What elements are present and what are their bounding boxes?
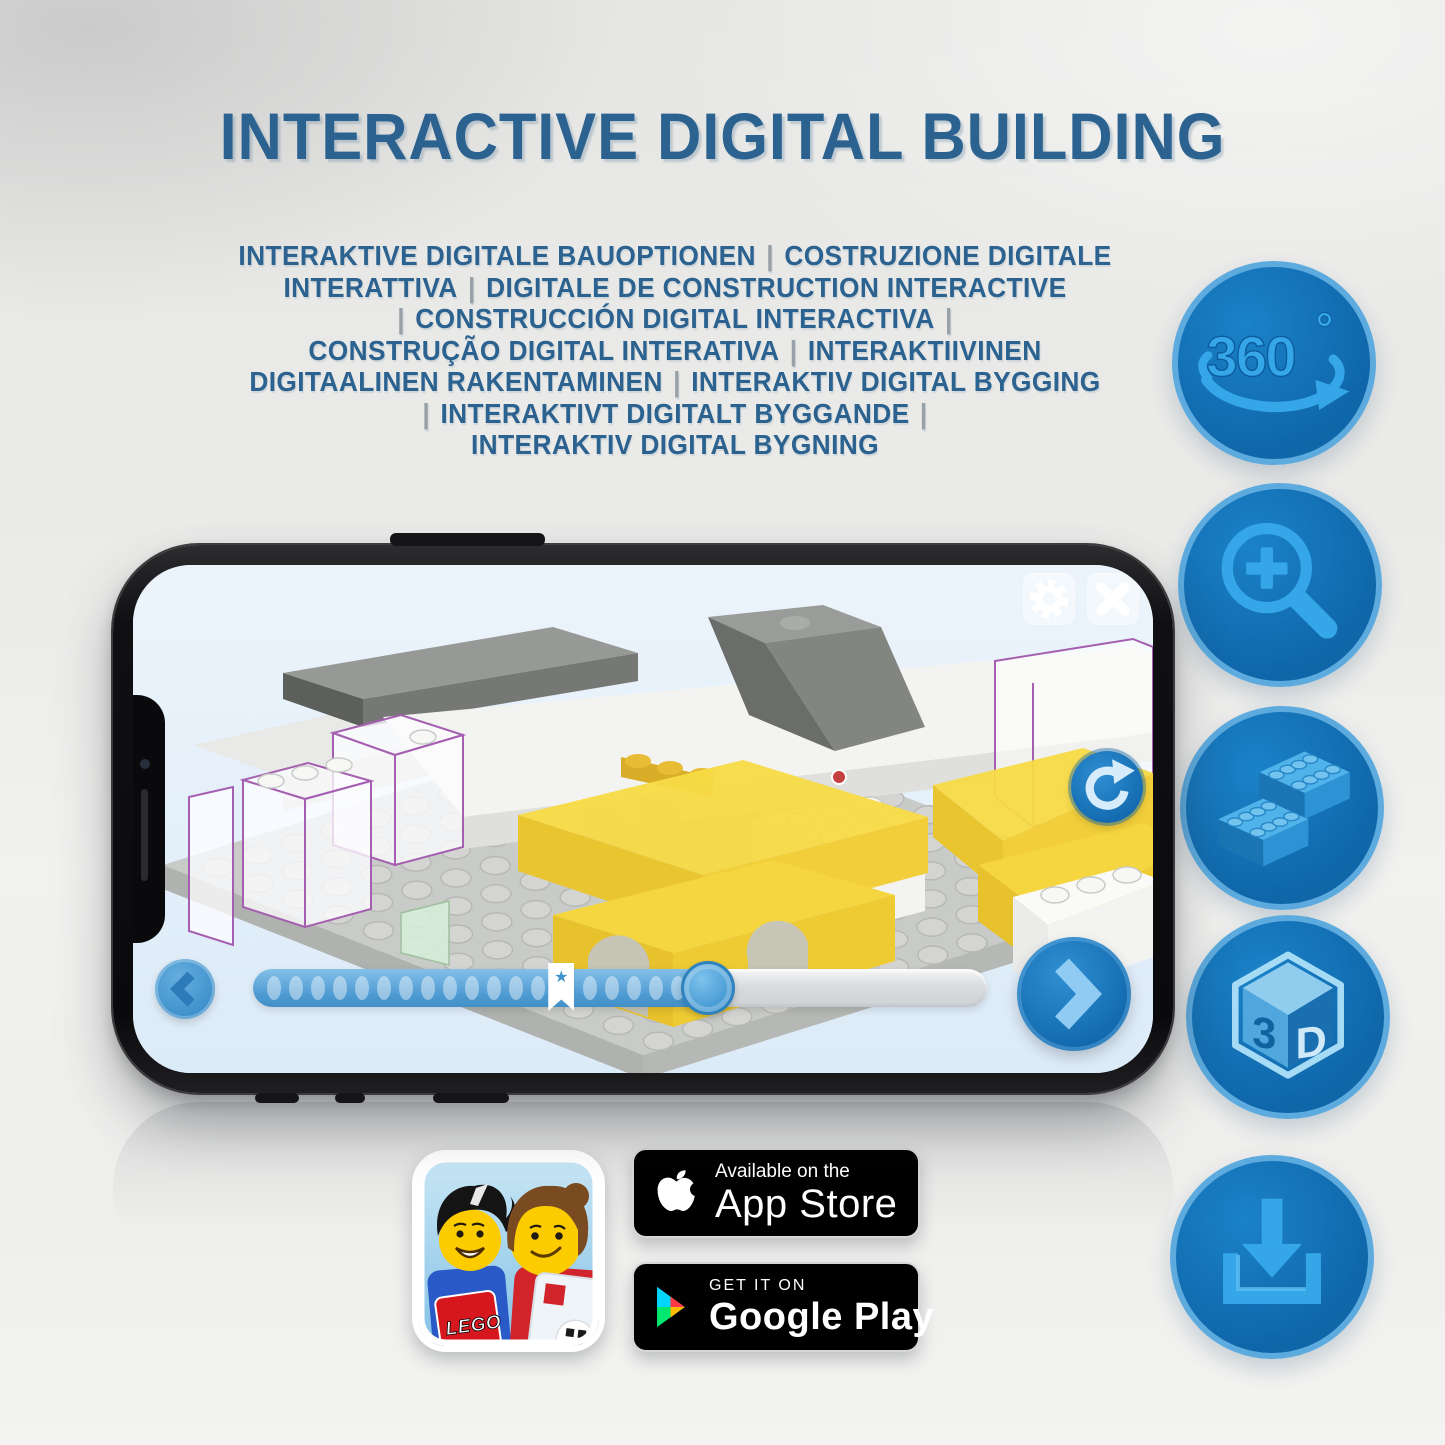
app-store-badge-title: App Store: [715, 1183, 897, 1225]
subtitle-text: INTERAKTIIVINEN: [808, 335, 1042, 366]
separator: |: [468, 272, 476, 303]
next-step-button[interactable]: [1017, 937, 1131, 1051]
rotate-icon: [1071, 751, 1143, 823]
star-icon: ★: [554, 970, 568, 986]
progress-fill: [253, 969, 708, 1007]
baseplate-stud: [481, 885, 511, 903]
google-play-badge-title: Google Play: [709, 1296, 934, 1338]
speaker-slot: [141, 789, 148, 881]
separator: |: [673, 366, 681, 397]
google-play-badge[interactable]: GET IT ON Google Play: [632, 1262, 920, 1352]
separator: |: [397, 303, 405, 334]
separator: |: [945, 303, 953, 334]
subtitle-text: CONSTRUÇÃO DIGITAL INTERATIVA: [308, 335, 779, 366]
feature-download-badge: [1170, 1155, 1374, 1359]
baseplate-stud: [480, 857, 510, 875]
progress-dot: [443, 976, 457, 1000]
step-progress-bar[interactable]: ★: [253, 969, 987, 1007]
progress-dot: [289, 976, 303, 1000]
subtitle-text: INTERAKTIV DIGITAL BYGGING: [691, 366, 1100, 397]
baseplate-stud: [441, 869, 471, 887]
phone-power-button: [390, 533, 545, 546]
rotate-view-button[interactable]: [1071, 751, 1143, 823]
svg-text:D: D: [1296, 1017, 1327, 1069]
svg-text:360: 360: [1206, 325, 1295, 388]
phone-notch: [133, 695, 165, 943]
baseplate-stud: [363, 922, 393, 940]
poster: INTERACTIVE DIGITAL BUILDING INTERAKTIVE…: [0, 0, 1445, 1445]
lego-logo: LEGO: [434, 1290, 504, 1346]
subtitle-text: INTERAKTIVE DIGITALE BAUOPTIONEN: [238, 240, 755, 271]
subtitle-text: INTERAKTIVT DIGITALT BYGGANDE: [440, 398, 909, 429]
subtitle-text: DIGITALE DE CONSTRUCTION INTERACTIVE: [486, 272, 1066, 303]
close-button[interactable]: [1087, 573, 1139, 625]
progress-handle[interactable]: [681, 961, 735, 1015]
subtitle-text: INTERATTIVA: [283, 272, 457, 303]
previous-step-button[interactable]: [155, 959, 215, 1019]
zoom-in-icon: [1184, 489, 1376, 681]
apple-icon: [652, 1165, 700, 1221]
phone-mockup: ★: [113, 545, 1173, 1093]
progress-dot: [509, 976, 523, 1000]
app-store-badge[interactable]: Available on the App Store: [632, 1148, 920, 1238]
baseplate-stud: [918, 946, 948, 964]
app-store-badge-caption: Available on the: [715, 1161, 897, 1183]
page-title: INTERACTIVE DIGITAL BUILDING: [51, 98, 1395, 174]
phone-volume-up-button: [255, 1093, 299, 1103]
baseplate-stud: [522, 929, 552, 947]
baseplate-stud: [603, 1016, 633, 1034]
progress-dot: [487, 976, 501, 1000]
subtitle-line: |CONSTRUCCIÓN DIGITAL INTERACTIVA|: [172, 303, 1178, 335]
close-icon: [1087, 573, 1139, 625]
subtitle-line: CONSTRUÇÃO DIGITAL INTERATIVA|INTERAKTII…: [172, 335, 1178, 367]
progress-dot: [399, 976, 413, 1000]
progress-dot: [355, 976, 369, 1000]
svg-text:3: 3: [1252, 1008, 1276, 1059]
lego-bricks-icon: [1186, 712, 1378, 904]
chevron-left-icon: [155, 959, 215, 1019]
progress-dot: [465, 976, 479, 1000]
subtitle: INTERAKTIVE DIGITALE BAUOPTIONEN|COSTRUZ…: [172, 240, 1178, 461]
svg-text:°: °: [1315, 303, 1333, 354]
lego-app-icon[interactable]: LEGO: [412, 1150, 605, 1352]
subtitle-line: INTERAKTIV DIGITAL BYGNING: [172, 429, 1178, 461]
progress-dot: [627, 976, 641, 1000]
feature-bricks-badge: [1180, 706, 1384, 910]
baseplate-stud: [521, 901, 551, 919]
phone-volume-down-button: [335, 1093, 365, 1103]
lego-app-icon-art: LEGO: [418, 1156, 599, 1346]
progress-dot: [649, 976, 663, 1000]
chevron-right-icon: [1017, 937, 1131, 1051]
settings-button[interactable]: [1023, 573, 1075, 625]
separator: |: [790, 335, 798, 366]
progress-dot: [267, 976, 281, 1000]
separator: |: [422, 398, 430, 429]
baseplate-stud: [917, 918, 947, 936]
feature-3d-badge: 3 D: [1186, 915, 1390, 1119]
feature-360-badge: 360 °: [1172, 261, 1376, 465]
subtitle-line: INTERAKTIVE DIGITALE BAUOPTIONEN|COSTRUZ…: [172, 240, 1178, 272]
front-camera: [140, 759, 150, 769]
separator: |: [920, 398, 928, 429]
360-rotation-icon: 360 °: [1178, 267, 1370, 459]
gear-icon: [1023, 573, 1075, 625]
app-screen: ★: [133, 565, 1153, 1073]
baseplate-stud: [957, 934, 987, 952]
progress-dot: [333, 976, 347, 1000]
google-play-icon: [652, 1283, 694, 1331]
baseplate-stud: [643, 1032, 673, 1050]
baseplate-stud: [402, 881, 432, 899]
progress-dot: [583, 976, 597, 1000]
google-play-badge-caption: GET IT ON: [709, 1276, 934, 1296]
subtitle-line: INTERATTIVA|DIGITALE DE CONSTRUCTION INT…: [172, 272, 1178, 304]
progress-dot: [311, 976, 325, 1000]
subtitle-text: INTERAKTIV DIGITAL BYGNING: [471, 429, 879, 460]
separator: |: [766, 240, 774, 271]
baseplate-stud: [482, 913, 512, 931]
subtitle-line: DIGITAALINEN RAKENTAMINEN|INTERAKTIV DIG…: [172, 366, 1178, 398]
download-icon: [1176, 1161, 1368, 1353]
phone-side-button: [433, 1093, 509, 1103]
feature-zoom-badge: [1178, 483, 1382, 687]
progress-dot: [531, 976, 545, 1000]
baseplate-stud: [483, 941, 513, 959]
progress-dot: [605, 976, 619, 1000]
subtitle-text: CONSTRUCCIÓN DIGITAL INTERACTIVA: [415, 303, 934, 334]
progress-dot: [421, 976, 435, 1000]
subtitle-line: |INTERAKTIVT DIGITALT BYGGANDE|: [172, 398, 1178, 430]
3d-cube-icon: 3 D: [1192, 921, 1384, 1113]
subtitle-text: DIGITAALINEN RAKENTAMINEN: [249, 366, 662, 397]
subtitle-text: COSTRUZIONE DIGITALE: [784, 240, 1111, 271]
progress-dot: [377, 976, 391, 1000]
